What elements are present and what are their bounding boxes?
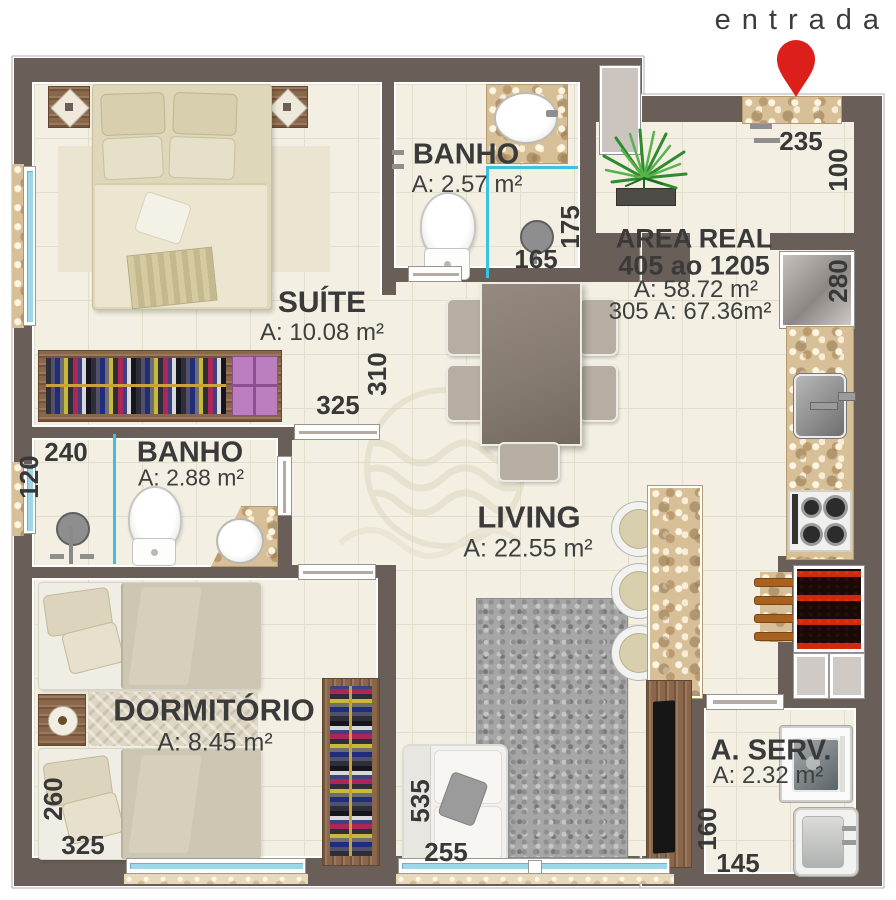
window-mullion	[528, 860, 542, 874]
shower-knob-icon	[50, 554, 64, 559]
window-glass	[130, 863, 303, 869]
suite-nightstand-left	[48, 86, 90, 128]
window-sill	[124, 874, 308, 884]
area-servico-sliding-door	[706, 694, 784, 710]
window-glass	[27, 171, 33, 322]
faucet-icon	[546, 110, 558, 117]
dim-suite-depth: 310	[364, 352, 390, 395]
suite-wardrobe	[38, 350, 282, 422]
dining-bench	[498, 442, 560, 482]
dim-hall-depth: 100	[825, 148, 851, 191]
suite-label: SUÍTE	[278, 288, 366, 318]
dim-banho-suite-width: 165	[514, 246, 557, 272]
dim-suite-width: 325	[316, 392, 359, 418]
banho-suite-door	[408, 266, 462, 282]
living-area: A: 22.55 m²	[463, 537, 592, 562]
area-servico-area: A: 2.32 m²	[713, 764, 824, 788]
dim-living-width: 255	[424, 839, 467, 865]
entrada-label: entrada	[715, 4, 890, 37]
toilet-tank	[132, 538, 176, 566]
plant-icon	[596, 126, 692, 222]
sink-icon	[216, 518, 264, 564]
area-real-area-alt: 305 A: 67.36m²	[609, 300, 772, 324]
laundry-tank-icon	[794, 808, 858, 876]
skewer-icon	[754, 632, 798, 641]
door-latch-icon	[754, 138, 780, 143]
dormitorio-nightstand	[38, 694, 86, 746]
suite-double-bed	[92, 84, 272, 310]
towel-hook-icon	[392, 150, 404, 155]
dim-area-servico-width: 145	[716, 850, 759, 876]
dim-banho-social-width: 240	[44, 439, 87, 465]
dim-kitchen-depth: 280	[825, 259, 851, 302]
kitchen-sink-icon	[794, 374, 846, 438]
suite-door	[294, 424, 380, 440]
storage-box	[232, 356, 278, 416]
tv-icon	[653, 700, 675, 854]
dormitorio-wardrobe	[322, 678, 380, 866]
dim-hall-width: 235	[779, 128, 822, 154]
barbecue-grill-icon	[794, 566, 864, 652]
dormitorio-area: A: 8.45 m²	[157, 731, 272, 756]
bar-counter	[648, 486, 702, 698]
floor-plan: entrada SUÍTE A: 10.08 m² BANHO A: 2.57 …	[0, 0, 896, 900]
banho-social-label: BANHO	[137, 439, 243, 468]
shower-pipe	[69, 526, 73, 564]
skewer-icon	[754, 596, 798, 605]
dim-dormitorio-width: 325	[61, 832, 104, 858]
dim-dormitorio-depth: 260	[40, 777, 66, 820]
door-latch-icon	[750, 124, 772, 129]
single-bed	[38, 582, 260, 690]
banho-suite-area: A: 2.57 m²	[412, 173, 523, 197]
towel-hook-icon	[392, 164, 404, 169]
tv-panel	[646, 680, 692, 868]
kitchen-faucet-icon	[838, 392, 856, 401]
shower-knob-icon	[80, 554, 94, 559]
skewer-icon	[754, 614, 798, 623]
shower-head-icon	[56, 512, 90, 546]
sink-icon	[494, 92, 558, 144]
dormitorio-door	[298, 564, 376, 580]
area-real-title: AREA REAL	[616, 226, 773, 253]
dim-banho-social-depth: 120	[16, 455, 42, 498]
shower-glass-line	[113, 434, 116, 564]
suite-area: A: 10.08 m²	[260, 321, 384, 345]
dim-banho-suite-depth: 175	[557, 205, 583, 248]
grill-counter-module	[830, 654, 864, 698]
grill-counter-module	[794, 654, 828, 698]
skewer-icon	[754, 578, 798, 587]
entry-threshold	[742, 96, 842, 124]
window-sill	[396, 874, 674, 884]
banho-social-area: A: 2.88 m²	[138, 467, 244, 490]
entrance-pin-icon	[774, 40, 818, 98]
banho-suite-label: BANHO	[413, 141, 519, 170]
dining-chair	[578, 364, 618, 422]
cooktop-icon	[788, 490, 852, 552]
dim-living-depth: 535	[407, 779, 433, 822]
suite-nightstand-right	[266, 86, 308, 128]
banho-social-door	[277, 456, 292, 516]
living-label: LIVING	[477, 502, 580, 533]
dormitorio-label: DORMITÓRIO	[113, 695, 315, 726]
dining-table	[480, 282, 582, 446]
dim-area-servico-depth: 160	[694, 807, 720, 850]
